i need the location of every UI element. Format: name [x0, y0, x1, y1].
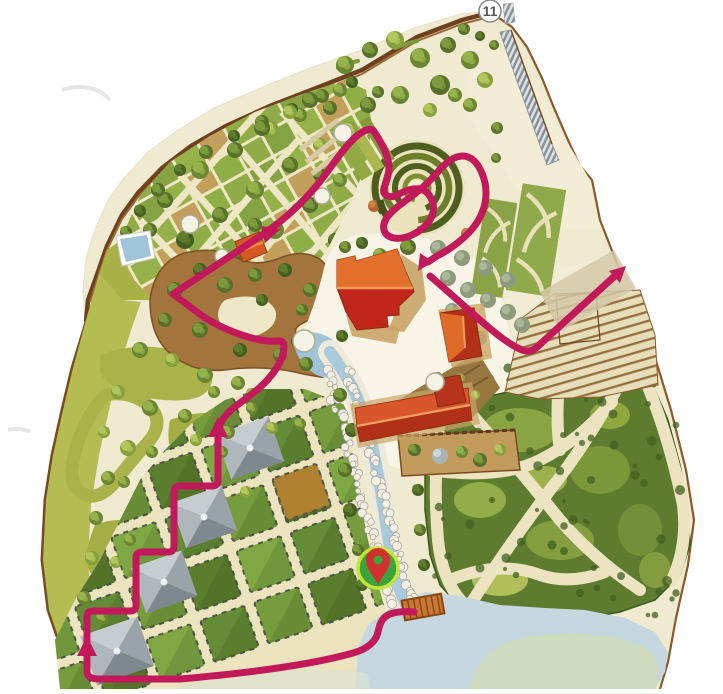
svg-text:11: 11	[483, 3, 498, 19]
